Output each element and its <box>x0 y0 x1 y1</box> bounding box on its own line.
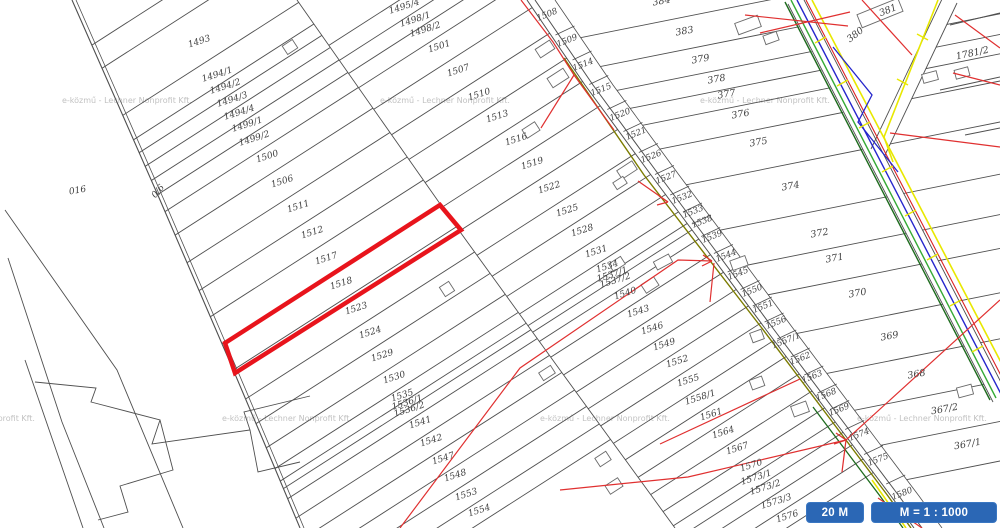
parcel-strip-line <box>301 167 1000 528</box>
building-footprint <box>535 40 555 58</box>
parcel-label: 367/1 <box>953 437 982 453</box>
map-canvas[interactable]: e-közmű - Lechner Nonprofit Kft.e-közmű … <box>0 0 1000 528</box>
parcel-label: 1558/1 <box>684 388 717 407</box>
parcel-label: 1506 <box>270 174 295 191</box>
parcel-strip-line <box>414 226 1000 410</box>
parcel-strip-line <box>0 113 829 528</box>
building-footprint <box>750 329 765 343</box>
parcel-label: 1529 <box>370 348 395 365</box>
parcel-label: 376 <box>731 108 751 122</box>
parcel-label: 1557/1 <box>771 331 802 351</box>
boundary-line <box>72 0 300 528</box>
watermark: e-közmű - Lechner Nonprofit Kft. <box>222 414 352 423</box>
parcel-label: 1548 <box>443 468 468 485</box>
parcel-label: 1547 <box>431 451 456 468</box>
parcel-label: 1574 <box>847 426 871 443</box>
parcel-label: 1564 <box>711 425 736 442</box>
building-footprint <box>605 478 623 495</box>
boundary-line <box>98 420 173 520</box>
parcel-strip-line <box>0 0 721 472</box>
parcel-label: 1549 <box>652 337 677 354</box>
utility-line <box>890 133 1000 147</box>
building-footprint <box>956 384 973 398</box>
parcel-label: 1524 <box>358 325 383 342</box>
parcel-label: 1551 <box>751 298 775 315</box>
parcel-label: 1552 <box>665 354 690 371</box>
road-edge-line <box>940 77 1000 90</box>
parcel-label: 1527 <box>654 169 678 187</box>
parcel-label: 1556 <box>764 314 788 332</box>
parcel-label: 384 <box>652 0 672 9</box>
parcel-label: 374 <box>781 180 801 194</box>
parcel-label: 0/6 <box>150 183 167 201</box>
building-footprint <box>653 254 672 270</box>
building-footprint <box>735 15 762 34</box>
highlighted-parcel-1518[interactable] <box>225 205 461 373</box>
road-edge-line <box>950 13 1000 25</box>
building-footprint <box>749 376 765 390</box>
parcel-label: 1513 <box>485 109 510 126</box>
parcel-label: 1541 <box>408 415 433 432</box>
parcel-label: 1542 <box>419 433 444 450</box>
scale-length-button[interactable]: 20 M <box>806 502 864 523</box>
parcel-strip-line <box>0 70 807 528</box>
utility-line <box>521 0 614 130</box>
boundary-line <box>35 382 310 444</box>
building-footprint <box>547 68 569 88</box>
parcel-label: 379 <box>691 53 711 67</box>
utility-line <box>953 73 1000 85</box>
building-footprint <box>439 281 454 296</box>
road-band-tick <box>886 475 905 484</box>
parcel-label: 1519 <box>520 156 545 173</box>
parcel-label: 1530 <box>382 370 407 387</box>
parcel-label: 1539 <box>700 228 724 246</box>
utility-line <box>703 255 712 261</box>
parcel-label: 371 <box>825 252 845 266</box>
parcel-label: 1525 <box>555 203 580 220</box>
parcel-label: 1518 <box>329 276 354 293</box>
parcel-label: 1563 <box>800 368 824 385</box>
parcel-label: 1512 <box>300 225 325 242</box>
boundary-line <box>76 0 304 528</box>
parcel-label: 1528 <box>570 223 595 240</box>
parcel-label: 016 <box>68 185 87 198</box>
parcel-label: 1517 <box>314 251 339 268</box>
parcel-strip-line <box>0 0 749 523</box>
utility-line <box>842 440 846 472</box>
parcel-strip-line <box>0 93 819 528</box>
utility-line <box>702 261 712 266</box>
utility-line <box>400 260 712 528</box>
parcel-strip-line <box>0 132 839 528</box>
parcel-label: 1545 <box>726 265 750 282</box>
scale-ratio-button[interactable]: M = 1 : 1000 <box>871 502 997 523</box>
parcel-strip-line <box>0 0 615 291</box>
watermark: e-közmű - Lechner Nonprofit Kft. <box>540 414 670 423</box>
west-labels: 0160/6 <box>68 183 167 201</box>
parcel-label: 1573/3 <box>760 492 793 511</box>
watermark: e-közmű - Lechner Nonprofit Kft. <box>62 96 192 105</box>
parcel-label: 1532 <box>670 189 694 206</box>
parcel-label: 368 <box>907 368 927 382</box>
building-footprint <box>791 401 810 417</box>
parcel-label: 1522 <box>537 180 562 197</box>
road-edge-line <box>965 128 1000 135</box>
parcel-label: 1576 <box>775 509 800 526</box>
utility-line <box>710 263 714 302</box>
parcel-strip-line <box>0 125 835 528</box>
building-footprint <box>613 176 627 189</box>
parcel-label: 370 <box>848 287 868 301</box>
parcel-label: 1516 <box>504 132 529 149</box>
parcel-label: 378 <box>707 73 727 87</box>
building-footprint <box>595 451 611 466</box>
utility-line <box>955 15 1000 48</box>
parcel-strip-line <box>471 303 1000 487</box>
parcel-label: 1507 <box>446 63 471 80</box>
boundary-line <box>5 210 183 528</box>
parcel-label: 1554 <box>467 503 492 520</box>
parcel-label: 1550 <box>740 282 764 300</box>
parcel-strip-line <box>0 0 764 528</box>
watermark: e-közmű - Lechner Nonprofit Kft. <box>857 414 987 423</box>
parcel-label: 1575 <box>866 451 890 468</box>
parcel-strip-line <box>8 176 868 528</box>
parcel-label: 369 <box>880 330 900 344</box>
boundary-line <box>250 430 300 472</box>
boundary-line <box>8 258 104 528</box>
parcel-label: 1493 <box>187 34 212 51</box>
parcel-label: 372 <box>810 227 830 241</box>
map-viewer: e-közmű - Lechner Nonprofit Kft.e-közmű … <box>0 0 1000 528</box>
parcel-label: 375 <box>749 136 769 150</box>
parcel-label: 1511 <box>286 199 311 216</box>
parcel-label: 383 <box>675 25 695 39</box>
parcel-label: 1540 <box>613 286 638 303</box>
parcel-label: 1521 <box>624 125 648 142</box>
parcel-strip-line <box>497 338 1000 522</box>
parcel-label: 1531 <box>584 244 609 261</box>
watermark: e-közmű - Lechner Nonprofit Kft. <box>0 414 35 423</box>
parcel-label: 1520 <box>608 106 632 124</box>
parcel-label: 1567 <box>725 441 750 458</box>
parcel-label: 1561 <box>699 407 724 424</box>
boundary-line <box>25 360 83 528</box>
parcel-label: 1508 <box>535 6 559 24</box>
parcel-strip-line <box>0 0 652 359</box>
